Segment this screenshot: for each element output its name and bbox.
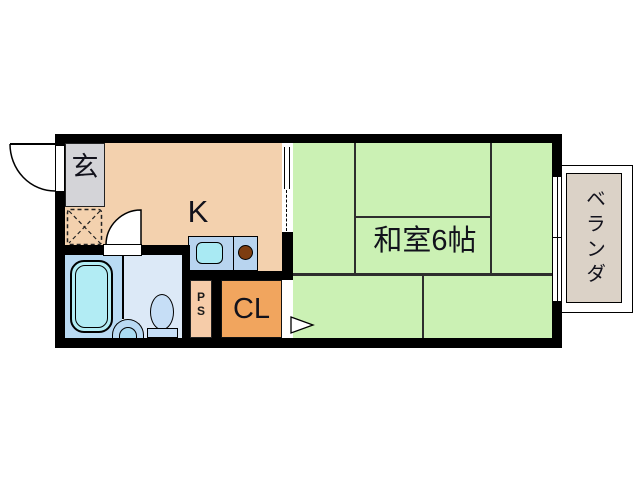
wall-right-lower — [552, 301, 562, 348]
sliding-door-icon — [284, 147, 290, 189]
counter-divider — [233, 237, 234, 270]
bathroom-door-leaf — [103, 244, 142, 256]
window-sash-tick — [553, 237, 561, 238]
pipe-space-area: P S — [190, 280, 212, 338]
balcony-area: ベランダ — [566, 173, 622, 303]
tatami-line-v1 — [354, 143, 356, 274]
wall-left-lower — [55, 192, 65, 348]
wall-bathroom-right — [182, 245, 190, 338]
sliding-door-track — [286, 190, 287, 231]
bathtub-icon — [70, 260, 113, 333]
opening-arrow-icon — [286, 314, 316, 336]
window-icon — [552, 177, 562, 301]
pipe-space-letter-s: S — [197, 304, 205, 318]
closet-area: CL — [221, 280, 282, 338]
wall-right-upper — [552, 134, 562, 177]
entry-door-arc-icon — [8, 140, 58, 194]
wall-top — [55, 134, 562, 143]
wall-above-ps-cl — [182, 271, 293, 280]
kitchen-counter — [188, 236, 258, 271]
bathroom-partition — [122, 255, 124, 319]
balcony-label: ベランダ — [580, 188, 609, 288]
washitsu-label: 和室6帖 — [355, 222, 495, 254]
window-center-line — [557, 177, 558, 301]
wall-bottom — [55, 338, 562, 348]
tatami-line-v2 — [490, 143, 492, 274]
wall-ps-cl-divider — [212, 280, 221, 338]
wall-bathroom-top-left — [65, 245, 103, 255]
toilet-tank — [147, 328, 178, 338]
bathtub-rim — [75, 265, 108, 328]
stove-burner-icon — [238, 245, 253, 260]
kitchen-label: K — [178, 196, 218, 228]
floor-plan: ベランダ 和室6帖 玄 P S CL K — [0, 0, 638, 480]
toilet-icon — [150, 294, 174, 330]
pipe-space-letter-p: P — [197, 290, 205, 304]
genkan-label: 玄 — [65, 146, 105, 182]
entry-step-dashed-box — [66, 208, 103, 246]
kitchen-sink-icon — [196, 242, 223, 264]
tatami-line-v3 — [422, 276, 424, 338]
washbasin-bowl — [119, 327, 137, 338]
